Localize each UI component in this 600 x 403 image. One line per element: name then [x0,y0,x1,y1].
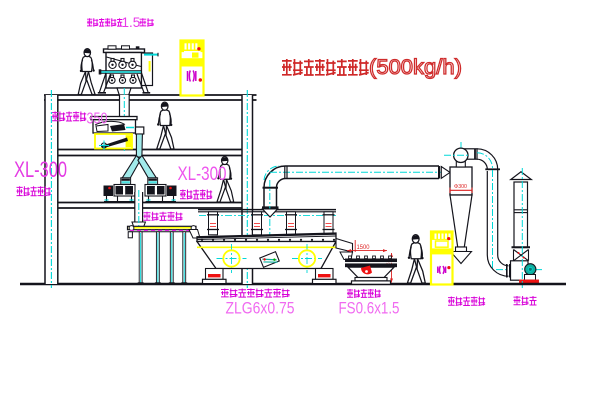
svg-text:1500: 1500 [357,245,371,251]
svg-text:XL-300: XL-300 [178,164,227,185]
svg-text:(500kg/h): (500kg/h) [369,55,462,79]
svg-text:350: 350 [87,111,108,128]
svg-text:FS0.6x1.5: FS0.6x1.5 [339,299,400,318]
svg-text:Φ300: Φ300 [454,184,467,190]
svg-text:ZLG6x0.75: ZLG6x0.75 [226,299,295,318]
svg-text:XL-300: XL-300 [14,157,67,182]
svg-text:1.5: 1.5 [122,15,141,30]
